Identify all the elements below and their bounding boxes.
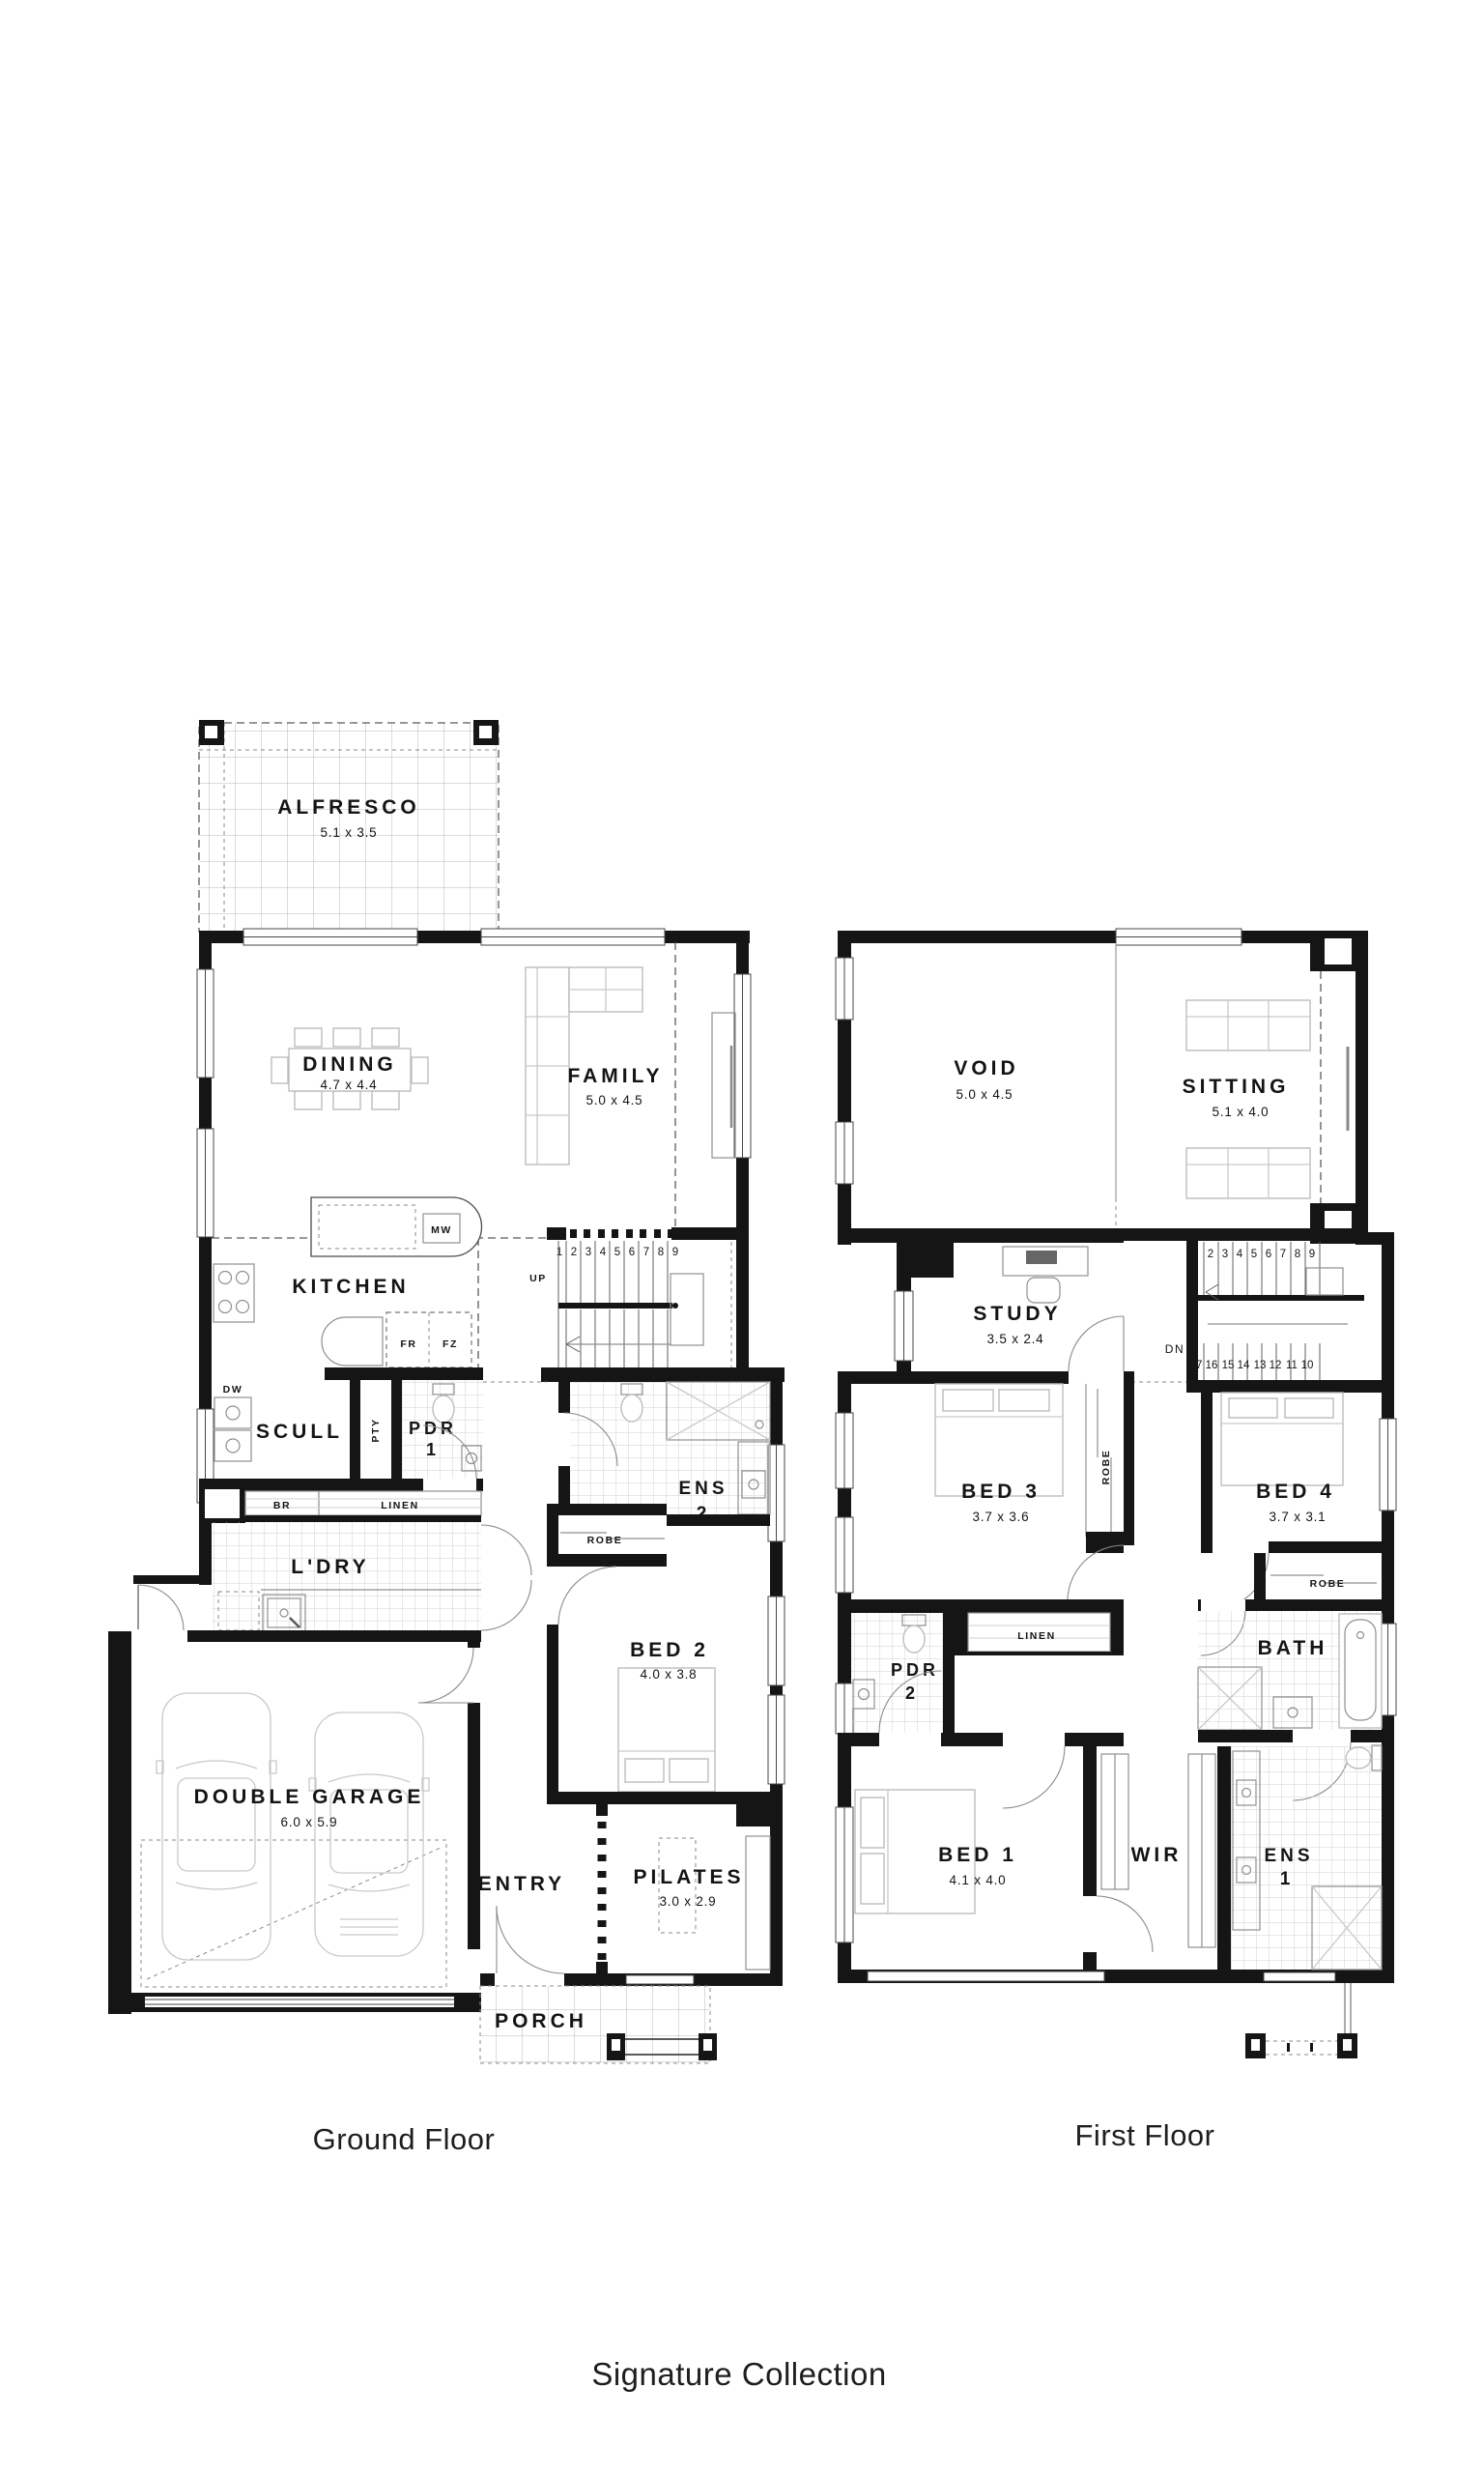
broom-label: BR <box>273 1500 291 1511</box>
room-dim-bed3: 3.7 x 3.6 <box>973 1510 1030 1524</box>
stair-num: 1 <box>556 1247 562 1258</box>
garage: DOUBLE GARAGE 6.0 x 5.9 <box>108 1630 481 2014</box>
room-dim-bed4: 3.7 x 3.1 <box>1270 1510 1327 1524</box>
stair-num: 2 <box>1208 1249 1213 1260</box>
stair-num: 12 <box>1270 1360 1282 1371</box>
collection-caption: Signature Collection <box>591 2356 886 2393</box>
robe3-label: ROBE <box>1100 1450 1112 1485</box>
dn-label: DN <box>1165 1342 1185 1356</box>
stair-num: 16 <box>1206 1360 1218 1371</box>
bed3: BED 3 3.7 x 3.6 ROBE <box>838 1371 1134 1613</box>
room-label-porch: PORCH <box>495 2010 587 2032</box>
room-label-garage: DOUBLE GARAGE <box>194 1786 425 1808</box>
kitchen-bench <box>322 1317 383 1366</box>
stair-num: 3 <box>1222 1249 1228 1260</box>
linen-label: LINEN <box>381 1500 419 1511</box>
room-dim-alfresco: 5.1 x 3.5 <box>321 825 378 840</box>
scullery-band: DW SCULL PTY PDR 1 <box>199 1380 483 1491</box>
kitchen-island <box>311 1197 481 1256</box>
room-label-family: FAMILY <box>567 1065 663 1087</box>
front-door-arc <box>497 1906 564 1973</box>
dishwasher-label: DW <box>223 1384 243 1395</box>
fridge-label: FR <box>400 1338 416 1350</box>
linen-pdr2: LINEN PDR 2 <box>851 1599 1124 1744</box>
ground-floor-caption: Ground Floor <box>313 2122 496 2157</box>
sitting-sofa-top <box>1186 1000 1310 1050</box>
room-label-ens1: ENS <box>1264 1846 1313 1866</box>
room-dim-bed1: 4.1 x 4.0 <box>950 1873 1007 1887</box>
garage-setdown <box>141 1840 446 1987</box>
room-label-bed4: BED 4 <box>1256 1481 1335 1503</box>
room-dim-void: 5.0 x 4.5 <box>956 1087 1013 1102</box>
wir-door-arc <box>1097 1896 1153 1952</box>
up-label: UP <box>529 1273 547 1284</box>
room-label-void: VOID <box>954 1057 1018 1079</box>
microwave-label: MW <box>431 1224 452 1236</box>
car-two <box>309 1712 429 1956</box>
stair-num: 7 <box>643 1247 649 1258</box>
room-label-kitchen: KITCHEN <box>292 1276 409 1298</box>
room-label-bed3: BED 3 <box>961 1481 1041 1503</box>
stair-num: 8 <box>1295 1249 1300 1260</box>
pdr2-toilet <box>903 1625 925 1653</box>
stair-num: 10 <box>1301 1360 1314 1371</box>
first-stairs: 2 3 4 5 6 7 8 9 17 16 15 14 13 12 11 10 … <box>1124 1228 1394 1393</box>
room-label-pdr1: PDR <box>409 1419 457 1438</box>
study: STUDY 3.5 x 2.4 <box>973 1247 1124 1371</box>
first-floor-caption: First Floor <box>1075 2118 1215 2153</box>
stair-num: 13 <box>1254 1360 1267 1371</box>
car-one <box>157 1693 276 1960</box>
stair-num: 9 <box>1309 1249 1315 1260</box>
scull-sink <box>214 1397 251 1428</box>
room-label-entry: ENTRY <box>478 1873 565 1895</box>
void-sitting: VOID 5.0 x 4.5 SITTING 5.1 x 4.0 <box>954 943 1356 1241</box>
room-label-dining: DINING <box>302 1053 397 1076</box>
room-label-bed2: BED 2 <box>630 1639 709 1661</box>
entry-pilates-porch: ENTRY PILATES 3.0 x 2.9 PORCH <box>478 1798 783 2063</box>
room-label-bed1: BED 1 <box>938 1844 1017 1866</box>
room-dim-family: 5.0 x 4.5 <box>586 1093 643 1108</box>
floorplan-page: ALFRESCO 5.1 x 3.5 <box>0 0 1484 2474</box>
stair-num: 6 <box>629 1247 635 1258</box>
kitchen: MW KITCHEN FR FZ <box>212 1197 558 1380</box>
bed1-door-arc <box>1003 1746 1065 1808</box>
robe-label: ROBE <box>587 1535 623 1546</box>
room-label-sitting: SITTING <box>1183 1076 1290 1098</box>
stair-num: 15 <box>1222 1360 1235 1371</box>
first-floor-plan: VOID 5.0 x 4.5 SITTING 5.1 x 4.0 2 3 4 5… <box>826 923 1406 2141</box>
room-dim-study: 3.5 x 2.4 <box>987 1332 1044 1346</box>
stair-num: 14 <box>1238 1360 1250 1371</box>
room-label-ldry: L'DRY <box>291 1556 369 1578</box>
stair-num: 6 <box>1266 1249 1271 1260</box>
room-dim-pilates: 3.0 x 2.9 <box>660 1894 717 1909</box>
stair-num: 11 <box>1286 1360 1298 1371</box>
laundry: L'DRY <box>212 1522 531 1631</box>
room-num-ens1: 1 <box>1280 1869 1295 1889</box>
alfresco-area: ALFRESCO 5.1 x 3.5 <box>199 720 499 932</box>
family-room: FAMILY 5.0 x 4.5 <box>526 942 735 1229</box>
stair-num: 7 <box>1280 1249 1286 1260</box>
room-label-scull: SCULL <box>256 1421 343 1443</box>
study-door-arc <box>1069 1316 1124 1371</box>
room-label-pilates: PILATES <box>633 1866 744 1888</box>
stair-num: 2 <box>571 1247 577 1258</box>
laundry-side-door-arc <box>138 1585 184 1630</box>
robe4-label: ROBE <box>1310 1578 1346 1590</box>
ground-floor-plan: ALFRESCO 5.1 x 3.5 <box>97 705 792 2078</box>
stair-num: 4 <box>600 1247 607 1258</box>
room-num-pdr1: 1 <box>426 1440 440 1459</box>
room-label-ens2: ENS <box>678 1479 728 1499</box>
stair-num: 8 <box>658 1247 664 1258</box>
bed2-door-arc <box>558 1567 616 1625</box>
dining-room: DINING 4.7 x 4.4 <box>271 1028 428 1109</box>
linen-label: LINEN <box>1017 1630 1056 1642</box>
stair-num: 5 <box>614 1247 620 1258</box>
freezer-label: FZ <box>442 1338 458 1350</box>
ens2-toilet <box>621 1395 642 1422</box>
garage-entry-door-arc <box>418 1648 473 1703</box>
ens2-bed2-block: ENS 2 ROBE BED 2 4.0 x 3.8 <box>483 1380 783 1804</box>
room-label-bath: BATH <box>1258 1637 1328 1659</box>
room-dim-dining: 4.7 x 4.4 <box>321 1078 378 1092</box>
pantry-label: PTY <box>370 1418 382 1442</box>
room-label-study: STUDY <box>973 1303 1061 1325</box>
room-label-alfresco: ALFRESCO <box>277 796 420 819</box>
stair-num: 3 <box>585 1247 591 1258</box>
room-label-wir: WIR <box>1131 1844 1183 1866</box>
stair-num: 9 <box>672 1247 678 1258</box>
bed3-door-arc <box>1068 1545 1124 1601</box>
room-dim-bed2: 4.0 x 3.8 <box>641 1667 698 1682</box>
room-dim-sitting: 5.1 x 4.0 <box>1213 1105 1270 1119</box>
sitting-sofa-bottom <box>1186 1148 1310 1198</box>
stair-num: 4 <box>1237 1249 1243 1260</box>
room-num-pdr2: 2 <box>905 1683 919 1703</box>
stair-num: 5 <box>1251 1249 1257 1260</box>
room-dim-garage: 6.0 x 5.9 <box>281 1815 338 1829</box>
cooktop <box>214 1264 254 1322</box>
